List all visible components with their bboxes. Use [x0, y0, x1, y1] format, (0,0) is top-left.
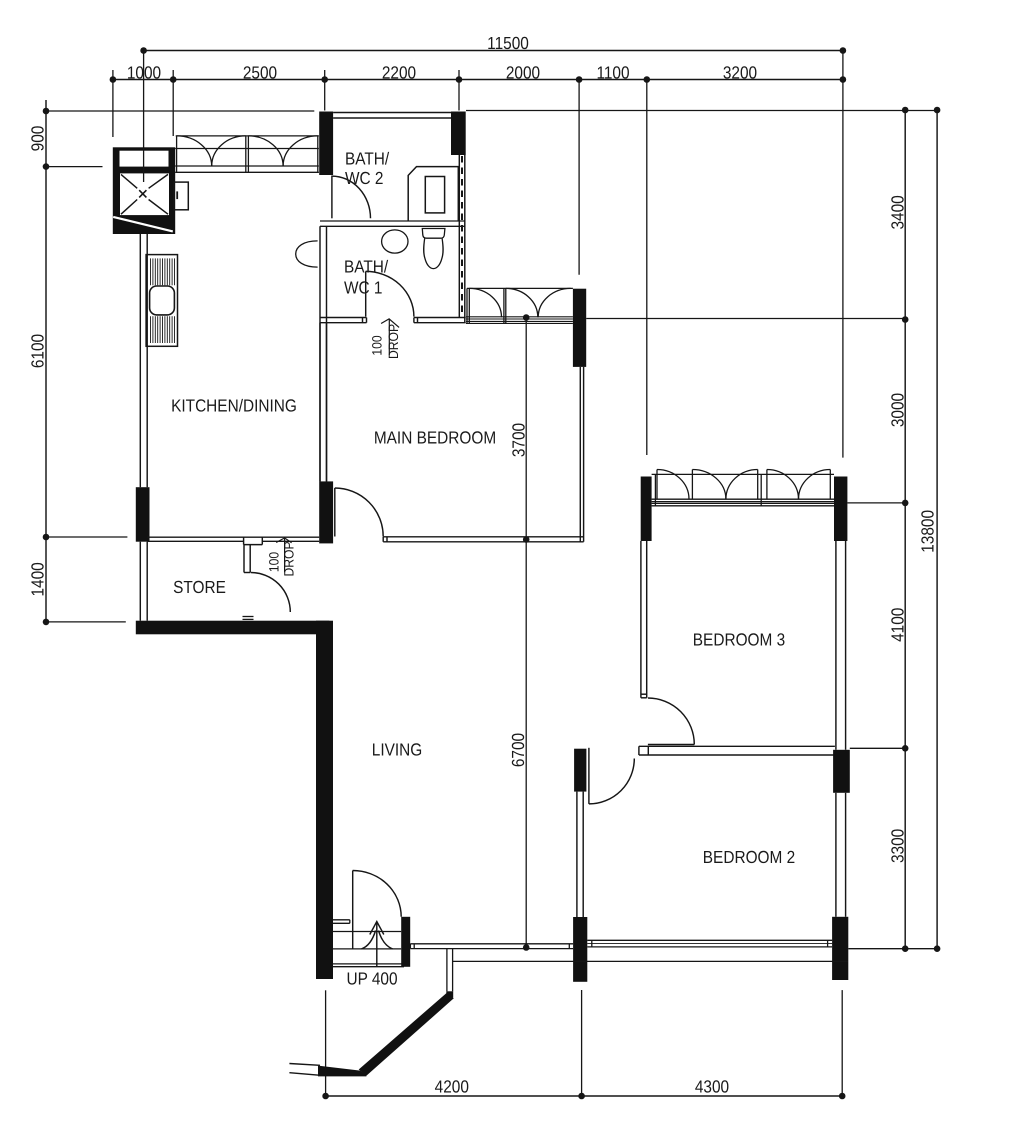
- svg-text:900: 900: [28, 125, 48, 151]
- svg-text:4200: 4200: [435, 1077, 469, 1097]
- svg-text:MAIN BEDROOM: MAIN BEDROOM: [374, 428, 496, 448]
- svg-text:BEDROOM 3: BEDROOM 3: [693, 630, 785, 650]
- svg-text:KITCHEN/DINING: KITCHEN/DINING: [171, 396, 297, 416]
- svg-text:1400: 1400: [28, 562, 48, 596]
- svg-text:BATH/: BATH/: [345, 149, 389, 169]
- svg-text:BATH/: BATH/: [344, 257, 388, 277]
- svg-text:DROP: DROP: [282, 541, 297, 576]
- svg-text:2500: 2500: [243, 62, 277, 82]
- svg-text:WC 1: WC 1: [344, 278, 383, 298]
- svg-text:UP 400: UP 400: [346, 969, 397, 989]
- svg-text:WC 2: WC 2: [345, 168, 384, 188]
- svg-text:BEDROOM 2: BEDROOM 2: [703, 847, 795, 867]
- svg-text:4100: 4100: [888, 607, 908, 641]
- svg-text:STORE: STORE: [173, 577, 226, 597]
- svg-text:11500: 11500: [487, 33, 529, 53]
- svg-text:4300: 4300: [695, 1077, 729, 1097]
- svg-text:100: 100: [267, 552, 282, 572]
- svg-text:3700: 3700: [509, 423, 529, 457]
- svg-text:6100: 6100: [28, 334, 48, 368]
- svg-text:6700: 6700: [508, 733, 528, 767]
- svg-text:1100: 1100: [596, 62, 629, 82]
- svg-text:3300: 3300: [888, 829, 908, 863]
- svg-text:3200: 3200: [723, 62, 757, 82]
- svg-text:2200: 2200: [382, 62, 416, 82]
- svg-text:2000: 2000: [506, 62, 540, 82]
- svg-text:3000: 3000: [888, 393, 908, 427]
- svg-text:13800: 13800: [918, 510, 938, 553]
- svg-text:LIVING: LIVING: [372, 740, 423, 760]
- svg-text:DROP: DROP: [386, 324, 401, 359]
- svg-text:3400: 3400: [888, 195, 908, 229]
- svg-text:100: 100: [370, 335, 385, 355]
